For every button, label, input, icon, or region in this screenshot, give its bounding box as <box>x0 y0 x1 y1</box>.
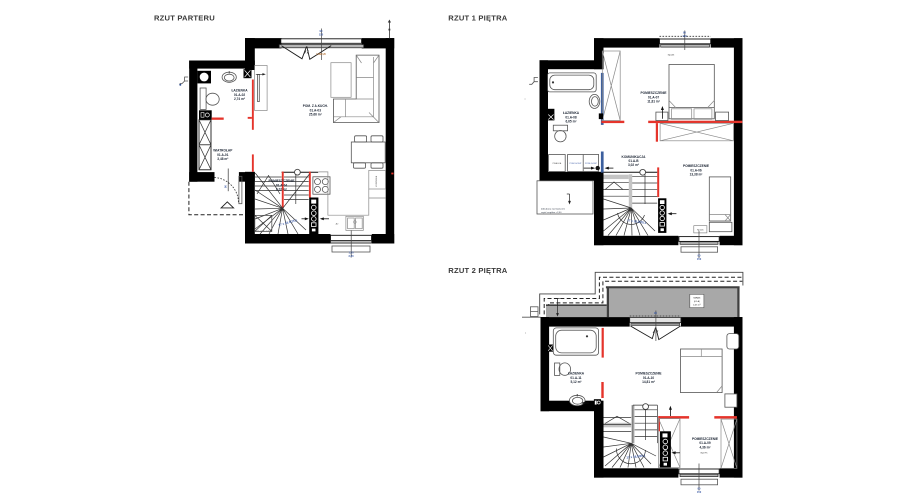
svg-text:RZUT 2 PIĘTRA: RZUT 2 PIĘTRA <box>448 266 507 275</box>
svg-text:6,02 m²: 6,02 m² <box>276 188 287 192</box>
svg-text:LODÓWKA: LODÓWKA <box>375 175 378 187</box>
svg-text:PRALKA: PRALKA <box>553 162 562 165</box>
svg-text:150: 150 <box>697 490 702 494</box>
svg-text:RZUT PARTERU: RZUT PARTERU <box>154 14 215 23</box>
svg-text:150: 150 <box>697 257 702 261</box>
svg-text:150: 150 <box>682 34 687 38</box>
svg-text:POM GOSP: POM GOSP <box>569 163 581 165</box>
svg-text:150: 150 <box>319 33 324 37</box>
svg-text:4,05 m²: 4,05 m² <box>693 303 701 306</box>
svg-text:RZUT 1 PIĘTRA: RZUT 1 PIĘTRA <box>448 14 507 23</box>
svg-text:3,02 m²: 3,02 m² <box>628 163 639 167</box>
svg-text:3,48 m²: 3,48 m² <box>217 157 228 161</box>
svg-text:WIATROŁAP: WIATROŁAP <box>213 148 233 152</box>
svg-text:13,38 m²: 13,38 m² <box>690 173 703 177</box>
svg-text:dobudowa nad wejściem: dobudowa nad wejściem <box>541 209 565 211</box>
svg-text:14,81 m²: 14,81 m² <box>642 380 655 384</box>
svg-text:POM GOSP: POM GOSP <box>585 163 597 165</box>
svg-text:Npt Hh: Npt Hh <box>701 452 709 455</box>
svg-text:2,20: 2,20 <box>348 254 354 258</box>
svg-text:1,50: 1,50 <box>348 251 354 255</box>
svg-text:część wspólna +2,50: część wspólna +2,50 <box>541 212 562 214</box>
svg-text:2,74 m²: 2,74 m² <box>234 97 245 101</box>
svg-text:6,65 m²: 6,65 m² <box>566 120 577 124</box>
svg-text:Np145: Np145 <box>668 55 675 57</box>
svg-text:Np145: Np145 <box>697 230 704 232</box>
svg-text:11,81 m²: 11,81 m² <box>647 100 660 104</box>
svg-text:25,66 m²: 25,66 m² <box>309 113 322 117</box>
svg-text:pom. gosp. 1,2m²: pom. gosp. 1,2m² <box>255 230 271 233</box>
svg-text:1,50/2,20: 1,50/2,20 <box>316 54 326 56</box>
svg-text:TARAS: TARAS <box>693 296 701 299</box>
svg-text:4,36 m²: 4,36 m² <box>700 445 711 449</box>
svg-text:5,12 m²: 5,12 m² <box>571 380 582 384</box>
svg-text:(01.A): (01.A) <box>694 300 700 303</box>
